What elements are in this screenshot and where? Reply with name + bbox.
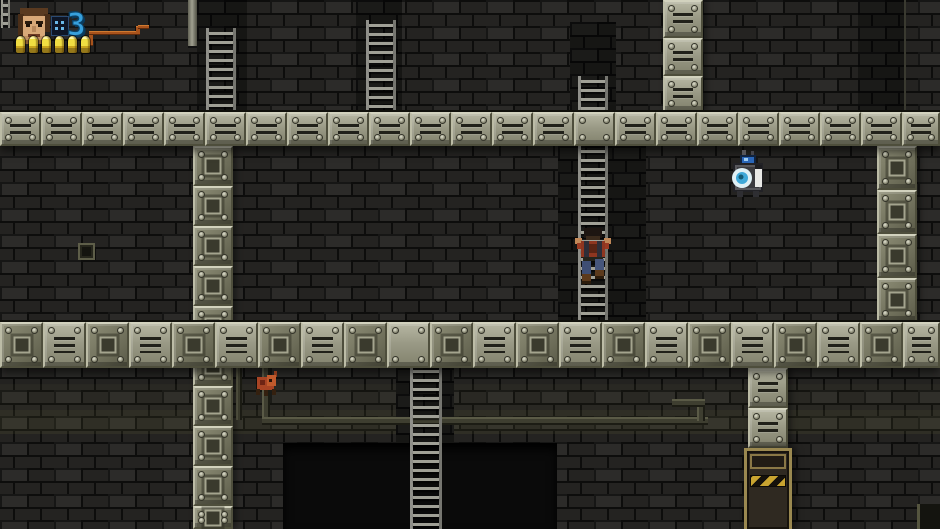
girder-panel <box>344 322 387 368</box>
bolt <box>211 118 216 123</box>
bolt <box>692 101 697 106</box>
bolt <box>522 118 527 123</box>
bolt <box>129 135 134 140</box>
bolt <box>30 135 35 140</box>
bolt <box>199 152 204 157</box>
bolt <box>481 135 486 140</box>
panel-center-square <box>889 292 906 309</box>
bolt <box>608 357 613 362</box>
bolt <box>6 328 11 333</box>
pillar-plate <box>748 368 788 408</box>
girder-panel <box>738 112 779 146</box>
bolt <box>211 135 216 140</box>
wall-vent-plaque <box>78 243 95 260</box>
vent-slats <box>625 124 646 135</box>
panel-center-square <box>443 337 460 354</box>
bullet-icon <box>68 36 77 53</box>
bolt <box>692 65 697 70</box>
orange-pipe-segment <box>89 31 139 35</box>
vent-slats <box>828 337 850 353</box>
bolt <box>686 118 691 123</box>
bolt <box>194 135 199 140</box>
bolt <box>850 135 855 140</box>
ladder-rung <box>369 105 393 108</box>
bolt <box>204 357 209 362</box>
vent-slats <box>420 124 441 135</box>
girder-panel <box>820 112 861 146</box>
bolt <box>416 135 421 140</box>
girder-panel <box>430 322 473 368</box>
bolt <box>170 118 175 123</box>
bolt <box>199 495 204 500</box>
girder-panel <box>287 112 328 146</box>
ladder-rung <box>581 89 605 92</box>
panel-center-square <box>271 337 288 354</box>
bolt <box>498 118 503 123</box>
bolt <box>565 328 570 333</box>
crawler-enemy <box>252 371 280 397</box>
bolt <box>929 357 934 362</box>
ladder <box>206 28 236 112</box>
ladder-rung <box>413 406 439 409</box>
bolt <box>621 118 626 123</box>
bolt <box>908 118 913 123</box>
pillar <box>663 0 703 112</box>
vent-slats <box>215 124 236 135</box>
girder-panel <box>656 112 697 146</box>
panel-center-square <box>889 204 906 221</box>
girder-panel <box>369 112 410 146</box>
bolt <box>333 328 338 333</box>
vent-slats <box>911 124 930 135</box>
bolt <box>47 118 52 123</box>
panel-center-square <box>13 337 30 354</box>
bolt <box>393 357 398 362</box>
ladder-rung <box>369 87 393 90</box>
bolt <box>669 6 674 11</box>
ladder-rung <box>369 42 393 45</box>
ladder-rung <box>413 469 439 472</box>
bolt <box>462 328 467 333</box>
door-column <box>748 368 788 448</box>
bolt <box>6 118 11 123</box>
bolt <box>199 312 204 317</box>
girder-panel <box>215 322 258 368</box>
bolt <box>199 432 204 437</box>
bolt <box>591 357 596 362</box>
bolt <box>457 118 462 123</box>
bolt <box>199 272 204 277</box>
bolt <box>727 135 732 140</box>
bolt <box>906 311 911 316</box>
bolt <box>376 357 381 362</box>
bolt <box>505 328 510 333</box>
ladder-rung <box>581 98 605 101</box>
bolt <box>307 357 312 362</box>
vent-slats <box>656 337 678 353</box>
girder-panel <box>574 112 615 146</box>
ladder-rung <box>209 86 233 89</box>
bolt <box>539 118 544 123</box>
bolt <box>199 512 204 517</box>
bolt <box>350 328 355 333</box>
girder-panel <box>697 112 738 146</box>
bolt <box>634 357 639 362</box>
bolt <box>744 118 749 123</box>
ladder-rung <box>369 33 393 36</box>
vent-slats <box>92 124 113 135</box>
bolt <box>112 118 117 123</box>
ladder-rung <box>581 204 605 207</box>
pillar-plate <box>663 38 703 76</box>
bolt <box>222 312 227 317</box>
bolt <box>30 118 35 123</box>
vent-slats <box>502 124 523 135</box>
bolt <box>703 135 708 140</box>
bolt <box>88 118 93 123</box>
exit-door[interactable] <box>744 448 792 529</box>
vent-slats <box>54 337 76 353</box>
bolt <box>170 135 175 140</box>
bolt <box>522 357 527 362</box>
bolt <box>92 328 97 333</box>
bolt <box>199 455 204 460</box>
bolt <box>252 135 257 140</box>
bolt <box>780 328 785 333</box>
bolt <box>849 328 854 333</box>
bolt <box>694 357 699 362</box>
bolt <box>199 255 204 260</box>
game-viewport[interactable]: 3 <box>0 0 940 529</box>
bolt <box>178 328 183 333</box>
ladder-rung <box>413 370 439 373</box>
bolt <box>737 357 742 362</box>
girder-panel <box>817 322 860 368</box>
bolt <box>32 357 37 362</box>
bolt <box>222 415 227 420</box>
wall-conduit <box>188 0 197 46</box>
vent-slats <box>140 337 162 353</box>
bolt <box>317 118 322 123</box>
panel-center-square <box>701 337 718 354</box>
vent-slats <box>543 124 564 135</box>
girder-platform-top <box>0 112 940 146</box>
ladder-rung <box>209 32 233 35</box>
girder-panel <box>123 112 164 146</box>
bolt <box>416 118 421 123</box>
edge-ladder-partial <box>1 0 10 28</box>
girder-panel <box>205 112 246 146</box>
bolt <box>481 118 486 123</box>
ladder-rung <box>581 159 605 162</box>
bolt <box>906 284 911 289</box>
bolt <box>153 118 158 123</box>
vent-slats <box>174 124 195 135</box>
bolt <box>112 135 117 140</box>
bolt <box>317 135 322 140</box>
bolt <box>199 472 204 477</box>
bullet-icon <box>42 36 51 53</box>
bolt <box>906 179 911 184</box>
bolt <box>806 328 811 333</box>
ladder-rung <box>413 505 439 508</box>
ladder-rung <box>581 186 605 189</box>
vent-slats <box>297 124 318 135</box>
bolt <box>118 328 123 333</box>
bolt <box>199 175 204 180</box>
bolt <box>194 118 199 123</box>
bolt <box>849 357 854 362</box>
bolt <box>754 374 759 379</box>
bolt <box>929 135 934 140</box>
bolt <box>608 328 613 333</box>
hazard-stripes <box>750 475 786 487</box>
bolt <box>744 135 749 140</box>
ladder-rung <box>581 294 605 297</box>
door-sign <box>750 454 786 469</box>
ladder-rung <box>581 213 605 216</box>
bolt <box>334 118 339 123</box>
bolt <box>692 6 697 11</box>
bolt <box>290 357 295 362</box>
pillar-plate <box>193 226 233 266</box>
bolt <box>720 357 725 362</box>
bolt <box>290 328 295 333</box>
bolt <box>891 118 896 123</box>
bolt <box>883 223 888 228</box>
ladder-rung <box>3 4 8 7</box>
girder-panel <box>731 322 774 368</box>
bolt <box>307 328 312 333</box>
bolt <box>777 437 782 442</box>
vent-slats <box>226 337 248 353</box>
vent-slats <box>51 124 72 135</box>
bolt <box>763 328 768 333</box>
pillar-plate <box>663 0 703 38</box>
pillar-plate <box>193 386 233 426</box>
bolt <box>440 135 445 140</box>
bolt <box>222 472 227 477</box>
bolt <box>662 135 667 140</box>
girder-panel <box>0 322 43 368</box>
ladder-rung <box>3 13 8 16</box>
pillar-plate <box>193 426 233 466</box>
vent-slats <box>707 124 728 135</box>
bolt <box>909 328 914 333</box>
panel-center-square <box>205 398 222 415</box>
ladder-rung <box>581 312 605 315</box>
wall-shaft <box>858 0 906 112</box>
girder-panel <box>861 112 902 146</box>
bolt <box>199 392 204 397</box>
ladder-rung <box>413 433 439 436</box>
ladder-rung <box>413 388 439 391</box>
bolt <box>604 118 609 123</box>
bolt <box>780 357 785 362</box>
bolt <box>436 357 441 362</box>
bolt <box>178 357 183 362</box>
bolt <box>906 223 911 228</box>
bolt <box>662 118 667 123</box>
bolt <box>809 118 814 123</box>
ladder-rung <box>209 95 233 98</box>
girder-panel <box>86 322 129 368</box>
bolt <box>883 152 888 157</box>
bolt <box>785 118 790 123</box>
bolt <box>754 437 759 442</box>
pillar-plate <box>193 186 233 226</box>
bolt <box>199 215 204 220</box>
bolt <box>883 240 888 245</box>
bolt <box>522 328 527 333</box>
bolt <box>375 135 380 140</box>
vent-slats <box>673 88 693 100</box>
girder-panel <box>0 112 41 146</box>
bolt <box>399 135 404 140</box>
bolt <box>199 375 204 380</box>
bolt <box>892 328 897 333</box>
panel-center-square <box>787 337 804 354</box>
ladder-rung <box>413 478 439 481</box>
bolt <box>419 357 424 362</box>
bolt <box>199 415 204 420</box>
bolt <box>49 328 54 333</box>
vent-slats <box>133 124 154 135</box>
vent-slats <box>789 124 810 135</box>
panel-center-square <box>357 337 374 354</box>
girder-panel <box>301 322 344 368</box>
bolt <box>333 357 338 362</box>
ladder-rung <box>413 424 439 427</box>
bolt <box>906 152 911 157</box>
bolt <box>754 397 759 402</box>
panel-center-square <box>205 509 222 526</box>
bolt <box>222 512 227 517</box>
bolt <box>199 232 204 237</box>
girder-panel <box>492 112 533 146</box>
ladder-rung <box>413 514 439 517</box>
bolt <box>677 357 682 362</box>
bolt <box>498 135 503 140</box>
girder-panel <box>258 322 301 368</box>
bolt <box>222 255 227 260</box>
bolt <box>293 135 298 140</box>
panel-center-square <box>615 337 632 354</box>
vent-slats <box>748 124 769 135</box>
panel-center-square <box>205 478 222 495</box>
ladder-rung <box>369 51 393 54</box>
girder-panel <box>602 322 645 368</box>
bolt <box>727 118 732 123</box>
vent-slats <box>673 13 693 26</box>
girder-panel <box>41 112 82 146</box>
ladder-rung <box>369 78 393 81</box>
vent-slats <box>830 124 851 135</box>
bolt <box>929 328 934 333</box>
bolt <box>694 328 699 333</box>
ladder-rung <box>209 41 233 44</box>
ladder-rung <box>413 460 439 463</box>
bolt <box>548 328 553 333</box>
bolt <box>199 518 204 523</box>
girder-panel <box>172 322 215 368</box>
bolt <box>75 357 80 362</box>
girder-panel <box>903 322 940 368</box>
vent-slats <box>312 337 334 353</box>
vent-slats <box>742 337 764 353</box>
bolt <box>334 135 339 140</box>
bolt <box>563 118 568 123</box>
ladder-rung <box>413 442 439 445</box>
girder-panel <box>559 322 602 368</box>
bolt <box>135 328 140 333</box>
girder-panel <box>615 112 656 146</box>
ladder-rung <box>413 397 439 400</box>
pillar-plate <box>193 146 233 186</box>
bolt <box>264 328 269 333</box>
bolt <box>479 328 484 333</box>
bolt <box>235 135 240 140</box>
pillar-plate <box>193 266 233 306</box>
bolt <box>548 357 553 362</box>
pillar-plate <box>663 76 703 112</box>
girder-panel <box>82 112 123 146</box>
bolt <box>929 118 934 123</box>
bolt <box>906 267 911 272</box>
bolt <box>118 357 123 362</box>
bolt <box>777 414 782 419</box>
bolt <box>867 135 872 140</box>
girder-panel <box>688 322 731 368</box>
bolt <box>252 118 257 123</box>
bolt <box>375 118 380 123</box>
ladder-rung <box>209 104 233 107</box>
bolt <box>867 118 872 123</box>
vent-slats <box>666 124 687 135</box>
bolt <box>161 357 166 362</box>
girder-panel <box>246 112 287 146</box>
bolt <box>440 118 445 123</box>
girder-panel <box>645 322 688 368</box>
girder-panel <box>328 112 369 146</box>
bolt <box>222 392 227 397</box>
panel-center-square <box>205 158 222 175</box>
bolt <box>293 118 298 123</box>
bolt <box>669 44 674 49</box>
girder-panel <box>902 112 940 146</box>
wall-tint-band <box>0 384 940 434</box>
panel-center-square <box>889 248 906 265</box>
bolt <box>522 135 527 140</box>
bolt <box>669 27 674 32</box>
pillar-plate <box>877 190 917 234</box>
bolt <box>883 311 888 316</box>
vent-slats <box>10 124 31 135</box>
bolt <box>763 357 768 362</box>
girder-panel <box>860 322 903 368</box>
ladder-rung <box>413 451 439 454</box>
girder-panel <box>516 322 559 368</box>
bolt <box>692 27 697 32</box>
bolt <box>720 328 725 333</box>
panel-center-square <box>873 337 890 354</box>
bolt <box>222 455 227 460</box>
pillar-plate <box>748 408 788 448</box>
bolt <box>692 82 697 87</box>
panel-center-square <box>205 198 222 215</box>
panel-center-square <box>889 160 906 177</box>
bolt <box>358 118 363 123</box>
